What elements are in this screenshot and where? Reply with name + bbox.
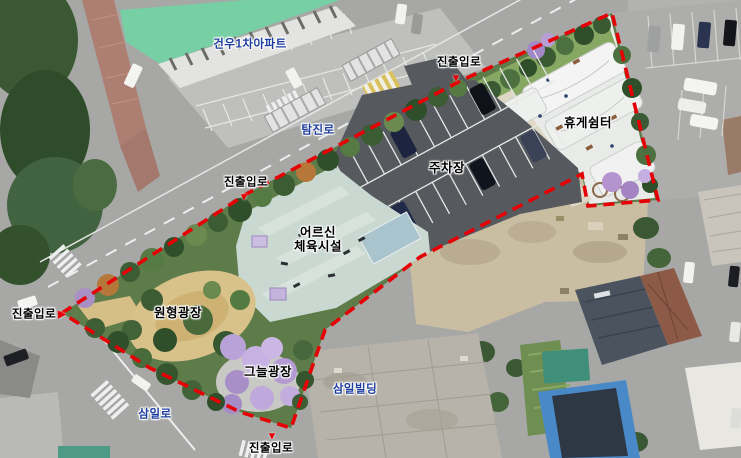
site-plan-map: 건우1차아파트 탐진로 삼일로 삼일빌딩 진출입로 ▼ 진출입로 ▼ 진출입로 …: [0, 0, 741, 458]
samil-building-roof: [303, 333, 502, 458]
aerial-photo: [0, 0, 741, 458]
